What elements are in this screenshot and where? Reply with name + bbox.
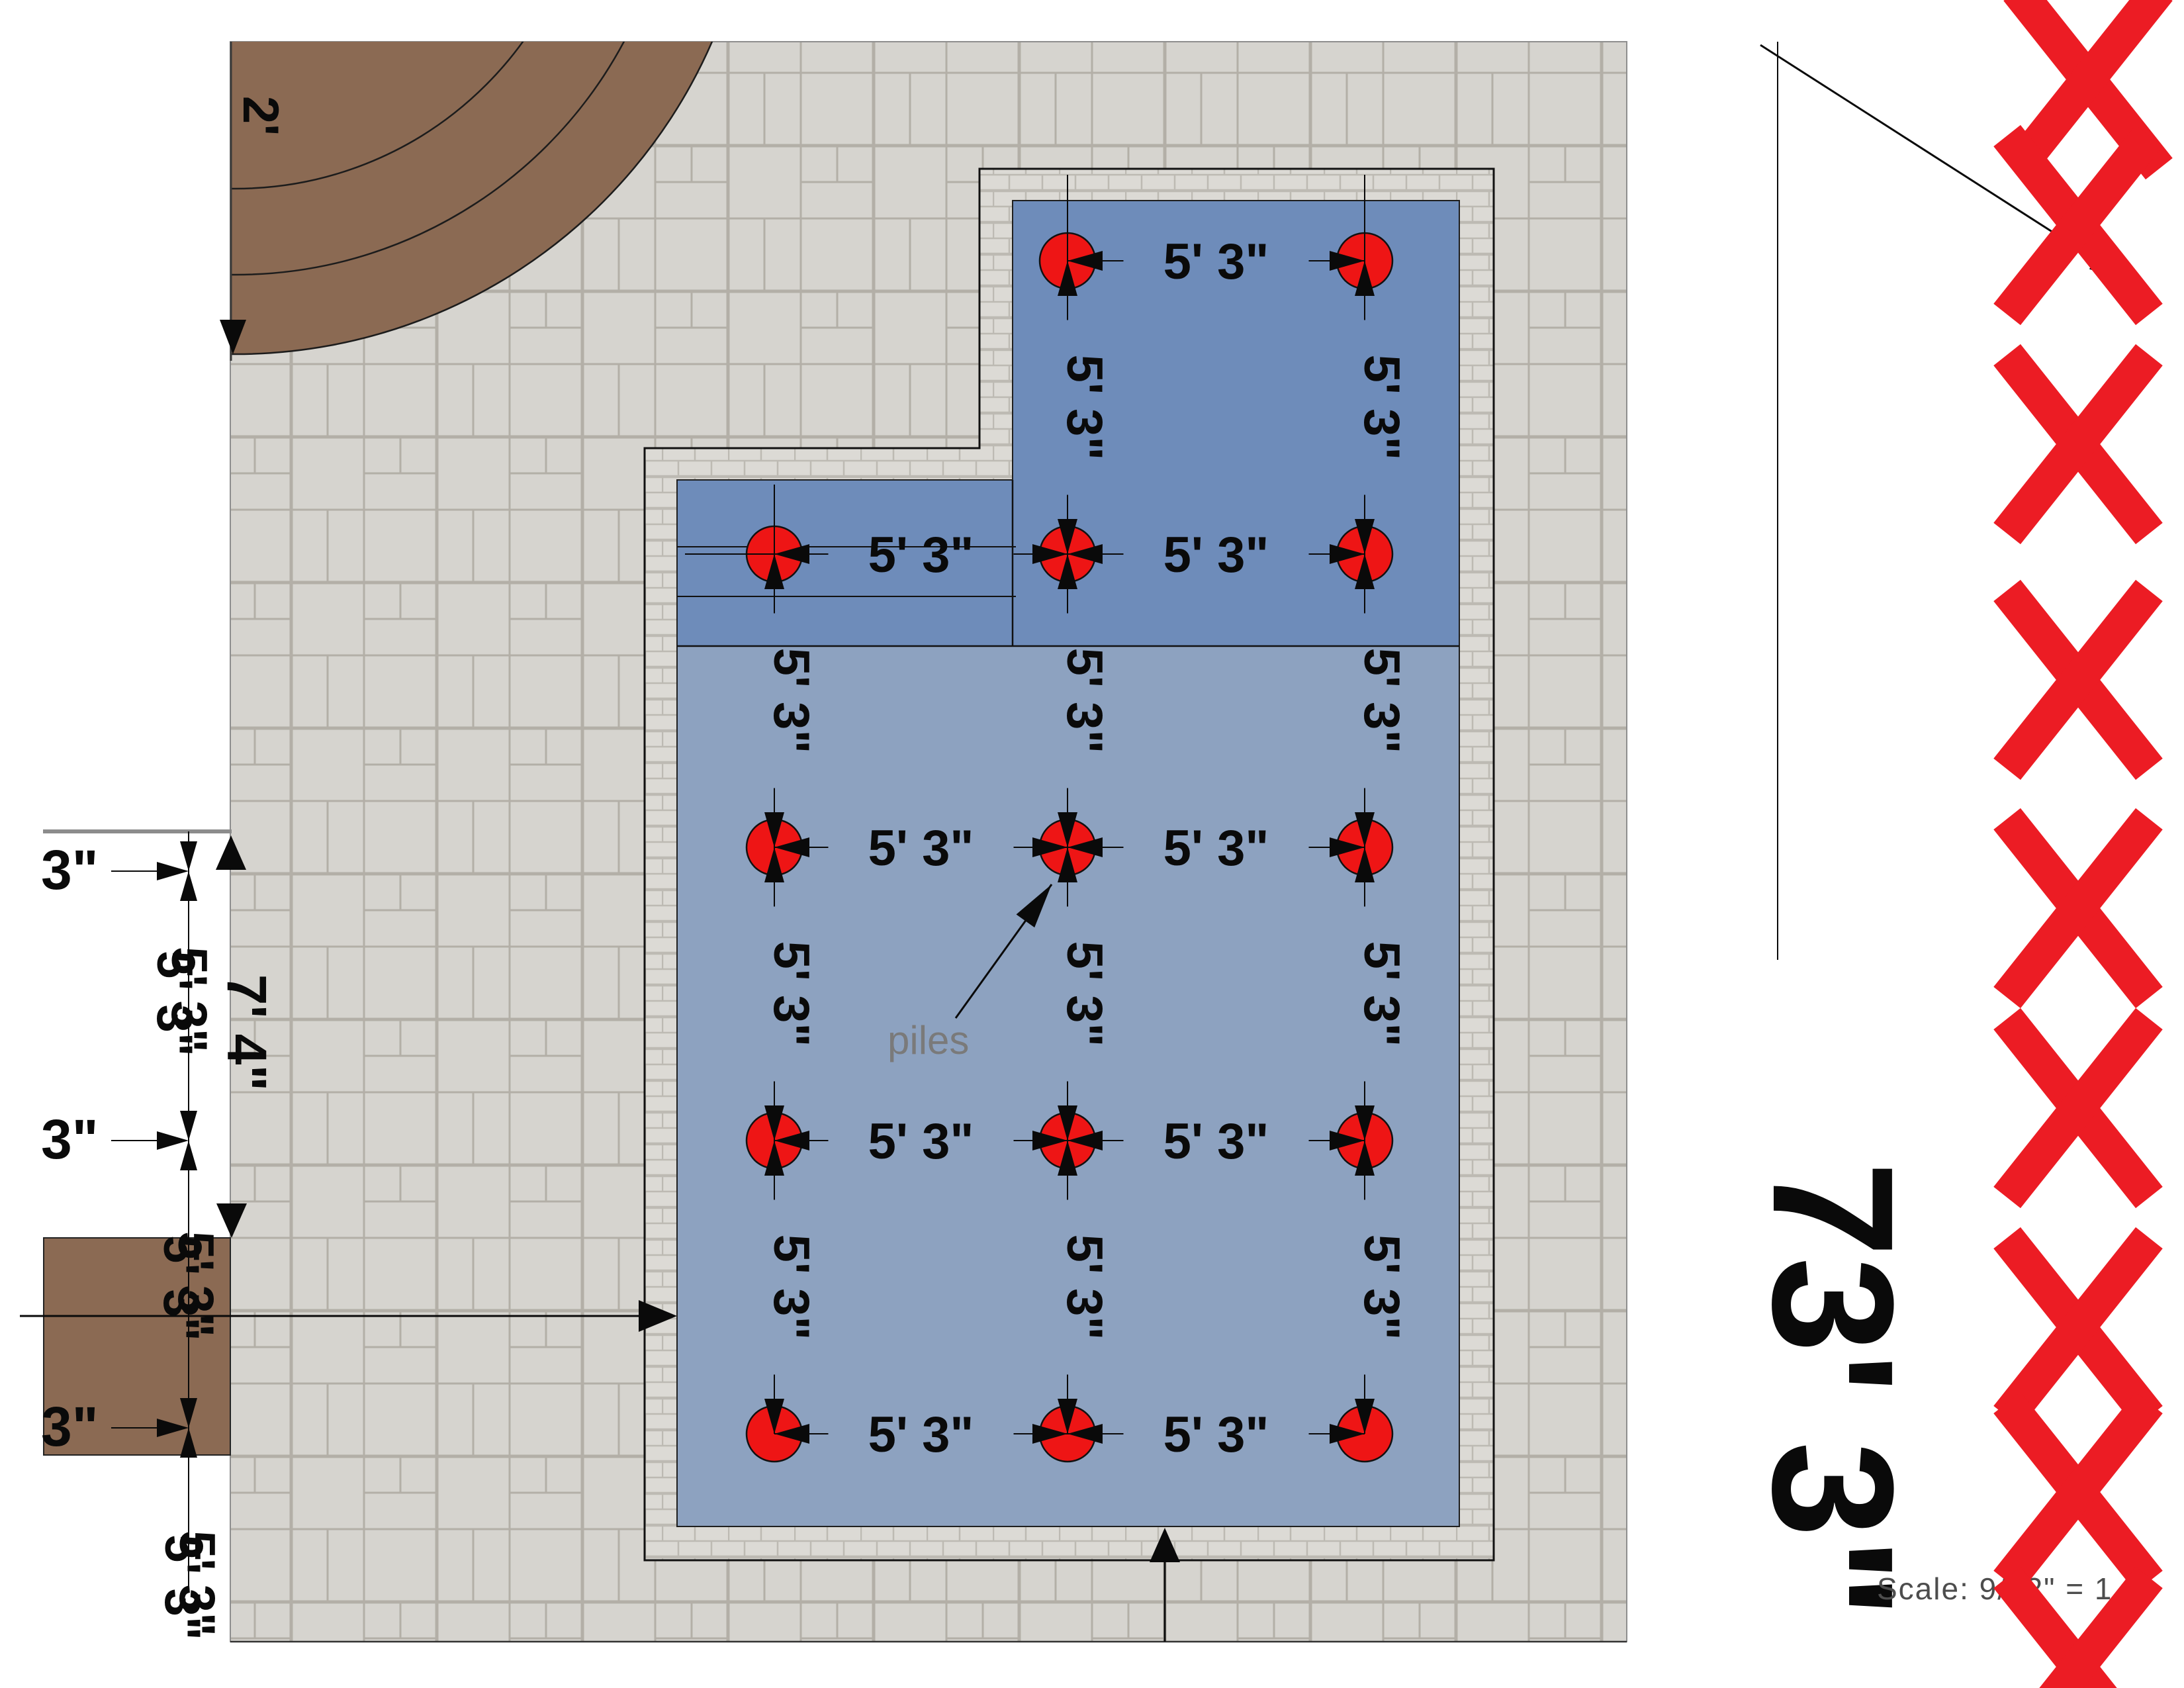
pile-spacing-label-h[interactable]: 5' 3" bbox=[868, 1113, 974, 1170]
x-mark-6[interactable] bbox=[1993, 1008, 2162, 1208]
pile-spacing-label-v[interactable]: 5' 3" bbox=[1353, 648, 1410, 754]
pile-spacing-label-v[interactable]: 5' 3" bbox=[1353, 1235, 1410, 1340]
pile-spacing-label-v[interactable]: 5' 3" bbox=[1056, 941, 1113, 1047]
right-total-label[interactable]: 73' 3" bbox=[1737, 1161, 1929, 1618]
pile-spacing-label-h[interactable]: 5' 3" bbox=[1163, 1407, 1269, 1463]
offset-stub-arrow-icon bbox=[157, 862, 189, 880]
edge-offset-label[interactable]: 3" bbox=[41, 1108, 99, 1170]
pile-spacing-label-h[interactable]: 5' 3" bbox=[1163, 1113, 1269, 1170]
x-mark-8[interactable] bbox=[1993, 1392, 2162, 1592]
pile-spacing-label-v[interactable]: 5' 3" bbox=[763, 1235, 819, 1340]
pile-spacing-label-v[interactable]: 5' 3" bbox=[1056, 648, 1113, 754]
pile-spacing-label-v[interactable]: 5' 3" bbox=[1353, 941, 1410, 1047]
x-mark-5[interactable] bbox=[1993, 808, 2162, 1008]
pile-spacing-label-h[interactable]: 5' 3" bbox=[868, 1407, 974, 1463]
pile-spacing-label-v[interactable]: 5' 3" bbox=[1353, 355, 1410, 461]
pile-spacing-label-v[interactable]: 5' 3" bbox=[763, 648, 819, 754]
chain-spacing-label-b1[interactable]: 5' 3" bbox=[167, 1231, 224, 1337]
chain-arrow-up-icon bbox=[180, 841, 197, 871]
left-total-label[interactable]: 7' 4" bbox=[216, 974, 278, 1092]
curve-radius-label[interactable]: 2' bbox=[232, 96, 289, 136]
piles-callout-label[interactable]: piles bbox=[887, 1018, 969, 1062]
pile-spacing-label-v[interactable]: 5' 3" bbox=[1056, 355, 1113, 461]
pile-spacing-label-v[interactable]: 5' 3" bbox=[763, 941, 819, 1047]
chain-arrow-up-icon bbox=[180, 1111, 197, 1141]
offset-stub-arrow-icon bbox=[157, 1131, 189, 1150]
chain-arrow-down-icon bbox=[180, 871, 197, 901]
chain-spacing-label-b0[interactable]: 5' 3" bbox=[161, 947, 217, 1053]
pile-spacing-label-h[interactable]: 5' 3" bbox=[1163, 234, 1269, 290]
pile-spacing-label-h[interactable]: 5' 3" bbox=[868, 820, 974, 876]
pile-spacing-label-h[interactable]: 5' 3" bbox=[1163, 820, 1269, 876]
pile-spacing-label-v[interactable]: 5' 3" bbox=[1056, 1235, 1113, 1340]
x-mark-4[interactable] bbox=[1993, 580, 2162, 780]
x-mark-2[interactable] bbox=[1993, 125, 2162, 325]
chain-arrow-down-icon bbox=[180, 1141, 197, 1170]
chain-spacing-label-b2[interactable]: 5' 3" bbox=[169, 1530, 225, 1636]
x-mark-3[interactable] bbox=[1993, 344, 2162, 544]
site-plan-svg: 2'3"3"3"5' 3"5' 3"5' 3"5' 3"5' 3"5' 3"7'… bbox=[0, 0, 2184, 1688]
edge-offset-label[interactable]: 3" bbox=[41, 1395, 99, 1458]
pile-spacing-label-h[interactable]: 5' 3" bbox=[868, 527, 974, 583]
pile-spacing-label-h[interactable]: 5' 3" bbox=[1163, 527, 1269, 583]
edge-offset-label[interactable]: 3" bbox=[41, 839, 99, 901]
plan-canvas[interactable]: 2'3"3"3"5' 3"5' 3"5' 3"5' 3"5' 3"5' 3"7'… bbox=[0, 0, 2184, 1688]
